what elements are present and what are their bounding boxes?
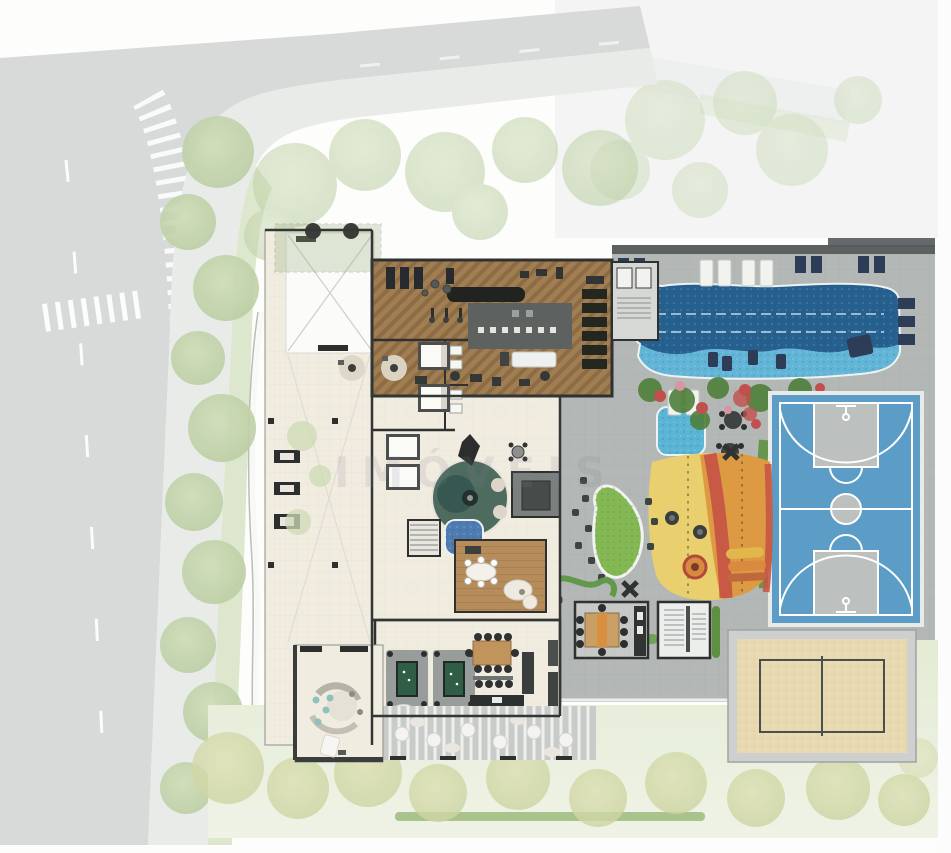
beach-volleyball-court (728, 630, 916, 762)
lounge-chair (491, 478, 505, 492)
elevator-core (612, 262, 658, 340)
north-wall-step (828, 238, 935, 247)
gym-counter (512, 352, 556, 367)
gym (372, 260, 612, 396)
stairs (408, 520, 440, 556)
lobby-chair (348, 364, 356, 372)
reading-room (455, 540, 546, 612)
playground (649, 453, 772, 600)
gym-shelf (500, 352, 509, 366)
massage-bed (386, 464, 420, 490)
gourmet-bbq (575, 602, 648, 658)
massage-bed (418, 342, 450, 370)
pergola (383, 706, 596, 760)
cafe-table (512, 446, 524, 458)
sauna (512, 472, 560, 517)
gym-bench-press (447, 287, 525, 302)
playground-red-edge (766, 464, 769, 592)
gym-mat (468, 303, 572, 349)
stairwell (658, 602, 710, 658)
entry-bench (318, 345, 348, 351)
site-plan: IMÓVEIS (0, 0, 951, 853)
lobby-stool (338, 360, 344, 365)
massage-bed (418, 384, 450, 412)
gym-plate (526, 310, 533, 317)
basketball-court (768, 391, 924, 627)
massage-bed (386, 434, 420, 460)
pool-outline (630, 284, 900, 379)
stair-hedge (712, 606, 720, 658)
reading-desk (465, 546, 481, 554)
gym-plate (512, 310, 519, 317)
right-edge-walk (938, 238, 951, 853)
lounge-chair (493, 505, 507, 519)
garden-lounge (293, 645, 383, 762)
